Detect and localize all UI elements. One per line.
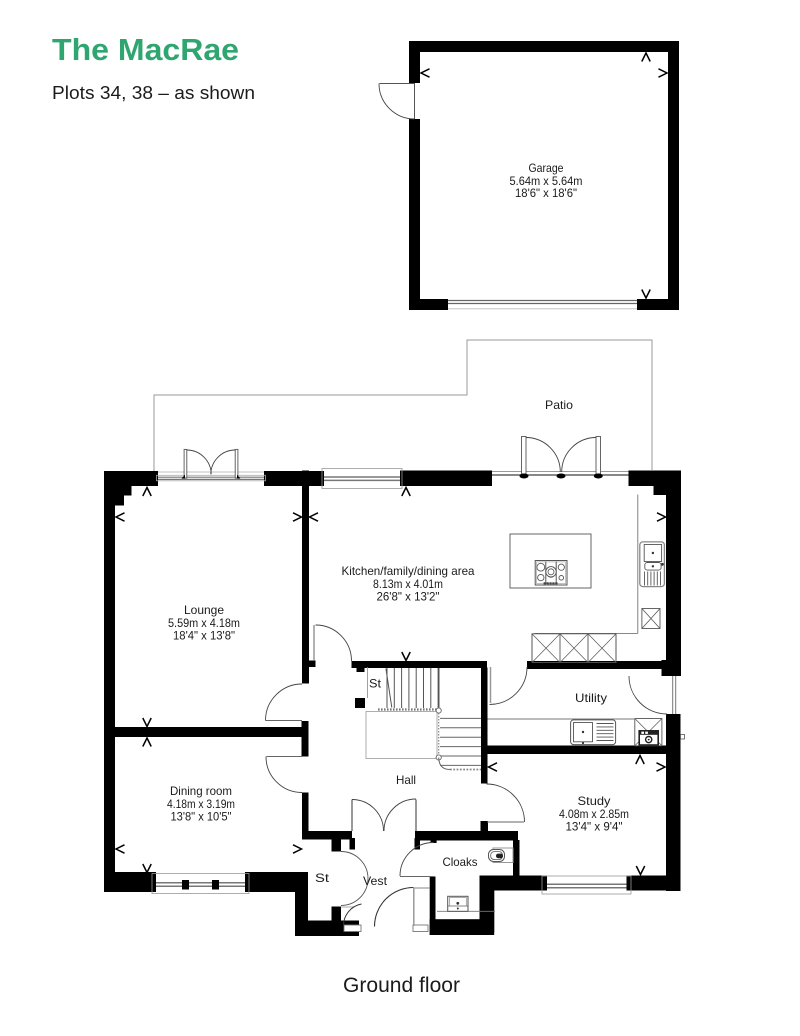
svg-text:Study: Study [578,794,611,808]
svg-text:Hall: Hall [396,773,416,787]
svg-text:Garage: Garage [529,161,564,175]
svg-text:18'6" x 18'6": 18'6" x 18'6" [515,186,577,200]
svg-text:Dining room: Dining room [170,784,232,798]
svg-text:The MacRae: The MacRae [52,32,239,67]
svg-text:Plots 34, 38 – as shown: Plots 34, 38 – as shown [52,83,255,103]
svg-text:Patio: Patio [545,398,573,412]
svg-text:Lounge: Lounge [184,603,224,617]
svg-text:Ground floor: Ground floor [343,973,460,997]
svg-text:Utility: Utility [575,691,607,705]
svg-text:Kitchen/family/dining area: Kitchen/family/dining area [342,564,475,578]
svg-text:26'8" x 13'2": 26'8" x 13'2" [377,590,440,604]
svg-text:St: St [369,677,382,691]
svg-text:St: St [315,871,330,885]
svg-text:13'8" x 10'5": 13'8" x 10'5" [171,810,232,824]
svg-text:18'4" x 13'8": 18'4" x 13'8" [173,629,235,643]
svg-text:Vest: Vest [363,874,388,888]
svg-text:13'4" x 9'4": 13'4" x 9'4" [566,820,623,834]
svg-text:Cloaks: Cloaks [443,855,478,869]
